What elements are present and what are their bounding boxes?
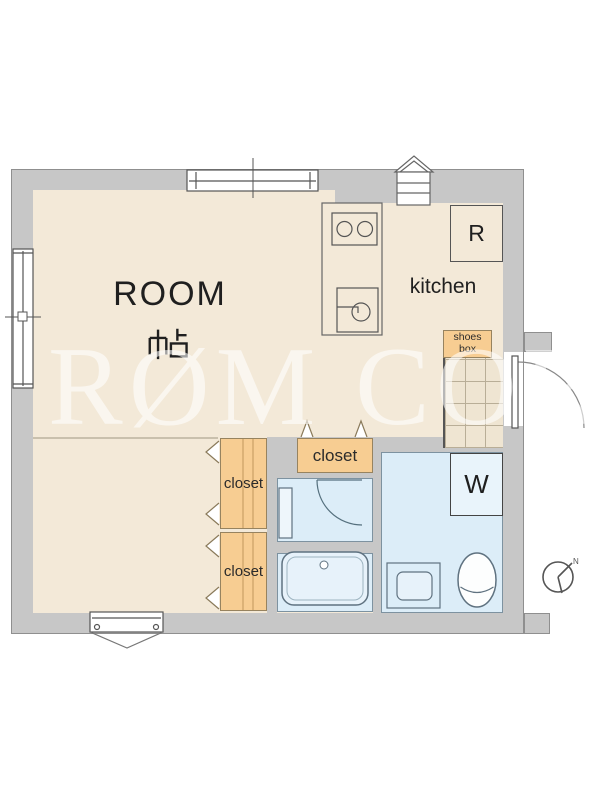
closet-lower-label: closet [224, 563, 263, 580]
entrance-door-opening [504, 352, 523, 426]
partition-wall-right [373, 445, 381, 613]
tatami-unit-label: 帖 [0, 0, 1, 1]
shoes-box: shoes box [443, 330, 492, 358]
partition-wall-bath [277, 542, 373, 553]
closet-hall-label: closet [313, 446, 357, 466]
closet-hall: closet [297, 438, 373, 473]
genkan-tiles [443, 358, 503, 448]
closet-upper: closet [220, 438, 267, 529]
shoes-box-label-line2: box [459, 344, 476, 356]
bottom-wall-extension [524, 613, 550, 634]
bathroom [277, 553, 373, 612]
closet-upper-label: closet [224, 475, 263, 492]
refrigerator-box: R [450, 205, 503, 262]
refrigerator-label: R [468, 220, 485, 247]
kitchen-label-text: kitchen [410, 275, 477, 299]
room-divider-line [33, 437, 218, 439]
partition-wall-left [267, 437, 277, 613]
kitchen-label: kitchen [383, 272, 503, 302]
washer-label: W [464, 469, 489, 500]
floorplan-image: closet closet closet shoes box R W ROOM … [0, 0, 600, 800]
entrance-wall-jog [524, 332, 552, 352]
washer-box: W [450, 453, 503, 516]
north-compass: N [543, 557, 579, 593]
washroom [277, 478, 373, 542]
room-label: ROOM [70, 274, 270, 314]
closet-lower: closet [220, 532, 267, 611]
room-label-text: ROOM [113, 275, 227, 314]
compass-north-text: N [573, 557, 579, 566]
